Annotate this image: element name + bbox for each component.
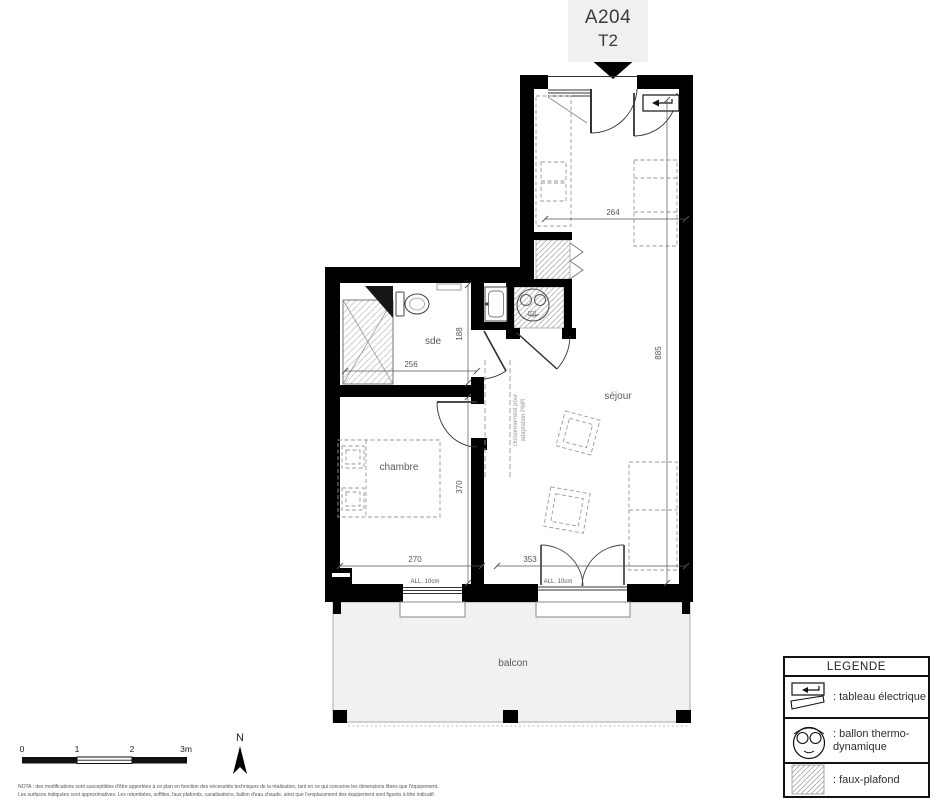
room-label-living: séjour — [604, 391, 632, 402]
scale-tick-0: 0 — [20, 744, 25, 754]
legend-row-electrical: : tableau électrique — [785, 677, 928, 719]
wall-segment — [471, 445, 484, 584]
dim-entry-width: 264 — [606, 208, 620, 217]
room-label-bathroom: sde — [425, 336, 442, 347]
scale-tick-1: 1 — [75, 744, 80, 754]
legend-label-false-ceiling: : faux-plafond — [833, 774, 900, 787]
wall-segment — [520, 75, 548, 89]
balcony-post — [333, 710, 347, 723]
door-leaf — [517, 333, 557, 369]
north-arrow-icon: N — [233, 732, 247, 774]
balcony-post — [503, 710, 518, 723]
wall-duct-slot — [332, 573, 350, 577]
wall-segment — [471, 283, 484, 330]
wall-segment — [332, 385, 471, 397]
legend-label-electrical: : tableau électrique — [833, 691, 926, 704]
sill-height-right: ALL. 10cm — [544, 579, 573, 585]
door-leaf — [484, 331, 506, 371]
bathroom-door — [484, 331, 506, 379]
table — [556, 411, 600, 455]
unit-label-box: A204 T2 — [568, 0, 648, 62]
room-label-bedroom: chambre — [380, 462, 419, 473]
unit-code: A204 — [568, 7, 648, 29]
room-label-balcony: balcon — [498, 658, 527, 669]
water-heater-icon — [785, 721, 833, 761]
wall-segment — [325, 267, 340, 602]
legend-label-water-heater: : ballon thermo- dynamique — [833, 728, 909, 754]
dim-living-height: 885 — [654, 346, 663, 360]
wall-segment — [325, 584, 403, 602]
balcony-post — [682, 602, 690, 614]
nota-line2: Les surfaces indiquées sont approximativ… — [18, 792, 658, 800]
wall-segment — [325, 267, 534, 283]
door-swing-arc — [557, 336, 570, 369]
toilet-bowl — [405, 294, 429, 314]
scale-tick-3: 3m — [180, 744, 192, 754]
balcony-post — [676, 710, 691, 723]
entry-window — [548, 88, 590, 123]
scale-bar: 0 1 2 3m — [20, 744, 192, 764]
sill-height-left: ALL. 10cm — [411, 579, 440, 585]
window-sill — [400, 602, 465, 617]
shelf — [437, 284, 461, 290]
door-swing-arc — [591, 89, 637, 133]
scale-segment — [22, 757, 77, 764]
legend-label-water-heater-line1: : ballon thermo- — [833, 728, 909, 741]
legend-label-water-heater-line2: dynamique — [833, 741, 909, 754]
balcony-post — [333, 602, 341, 614]
wall-segment — [471, 377, 484, 404]
wall-segment — [679, 75, 693, 602]
bed — [338, 440, 440, 517]
kitchen-appliances — [634, 160, 677, 246]
wall-segment — [520, 75, 534, 283]
door-swing-arc — [484, 371, 506, 379]
room-label-storage: rgt — [528, 308, 538, 317]
table — [544, 487, 590, 533]
toilet-tank — [396, 292, 404, 316]
north-label: N — [236, 732, 244, 744]
dim-bedroom-width: 270 — [408, 555, 422, 564]
electrical-panel-icon — [785, 681, 833, 713]
louver-door-icon — [570, 243, 583, 261]
legend-row-water-heater: : ballon thermo- dynamique — [785, 719, 928, 764]
casement-swing-line — [548, 97, 587, 123]
electrical-panel-icon — [643, 95, 679, 111]
faucet — [485, 302, 488, 305]
pmr-annotation-line1: cloisonnement pour — [513, 394, 519, 446]
wall-segment — [462, 584, 538, 602]
sofa — [629, 462, 677, 570]
bedroom-window — [400, 584, 465, 617]
pmr-annotation-line2: adaptation PMR — [521, 398, 527, 442]
wall-segment — [514, 279, 572, 287]
kitchen-counter — [536, 96, 571, 226]
scale-tick-2: 2 — [130, 744, 135, 754]
entry-door — [591, 89, 637, 133]
louver-door-icon — [570, 261, 583, 279]
dim-bathroom-depth: 188 — [455, 327, 464, 341]
legend-row-false-ceiling: : faux-plafond — [785, 764, 928, 796]
dim-living-width: 353 — [523, 555, 537, 564]
wall-segment — [564, 287, 572, 330]
floor-plan-page: cloisonnement pour adaptation PMR 264 88… — [0, 0, 937, 800]
wall-segment — [627, 584, 693, 602]
upper-closet-hatch — [536, 240, 570, 279]
door-swing-arc — [582, 545, 624, 586]
dim-bathroom-width: 256 — [404, 360, 418, 369]
legend-title: LEGENDE — [785, 658, 928, 677]
legend-box: LEGENDE : tableau électrique — [783, 656, 930, 798]
nota-line1: NOTA : des modifications sont susceptibl… — [18, 784, 658, 792]
wall-segment — [534, 232, 572, 240]
window-sill — [536, 602, 630, 617]
dim-bedroom-depth: 370 — [455, 480, 464, 494]
unit-type: T2 — [568, 31, 648, 51]
ceiling-hatch-icon — [785, 764, 833, 796]
nota-text: NOTA : des modifications sont susceptibl… — [18, 784, 658, 799]
scale-segment — [132, 757, 187, 764]
